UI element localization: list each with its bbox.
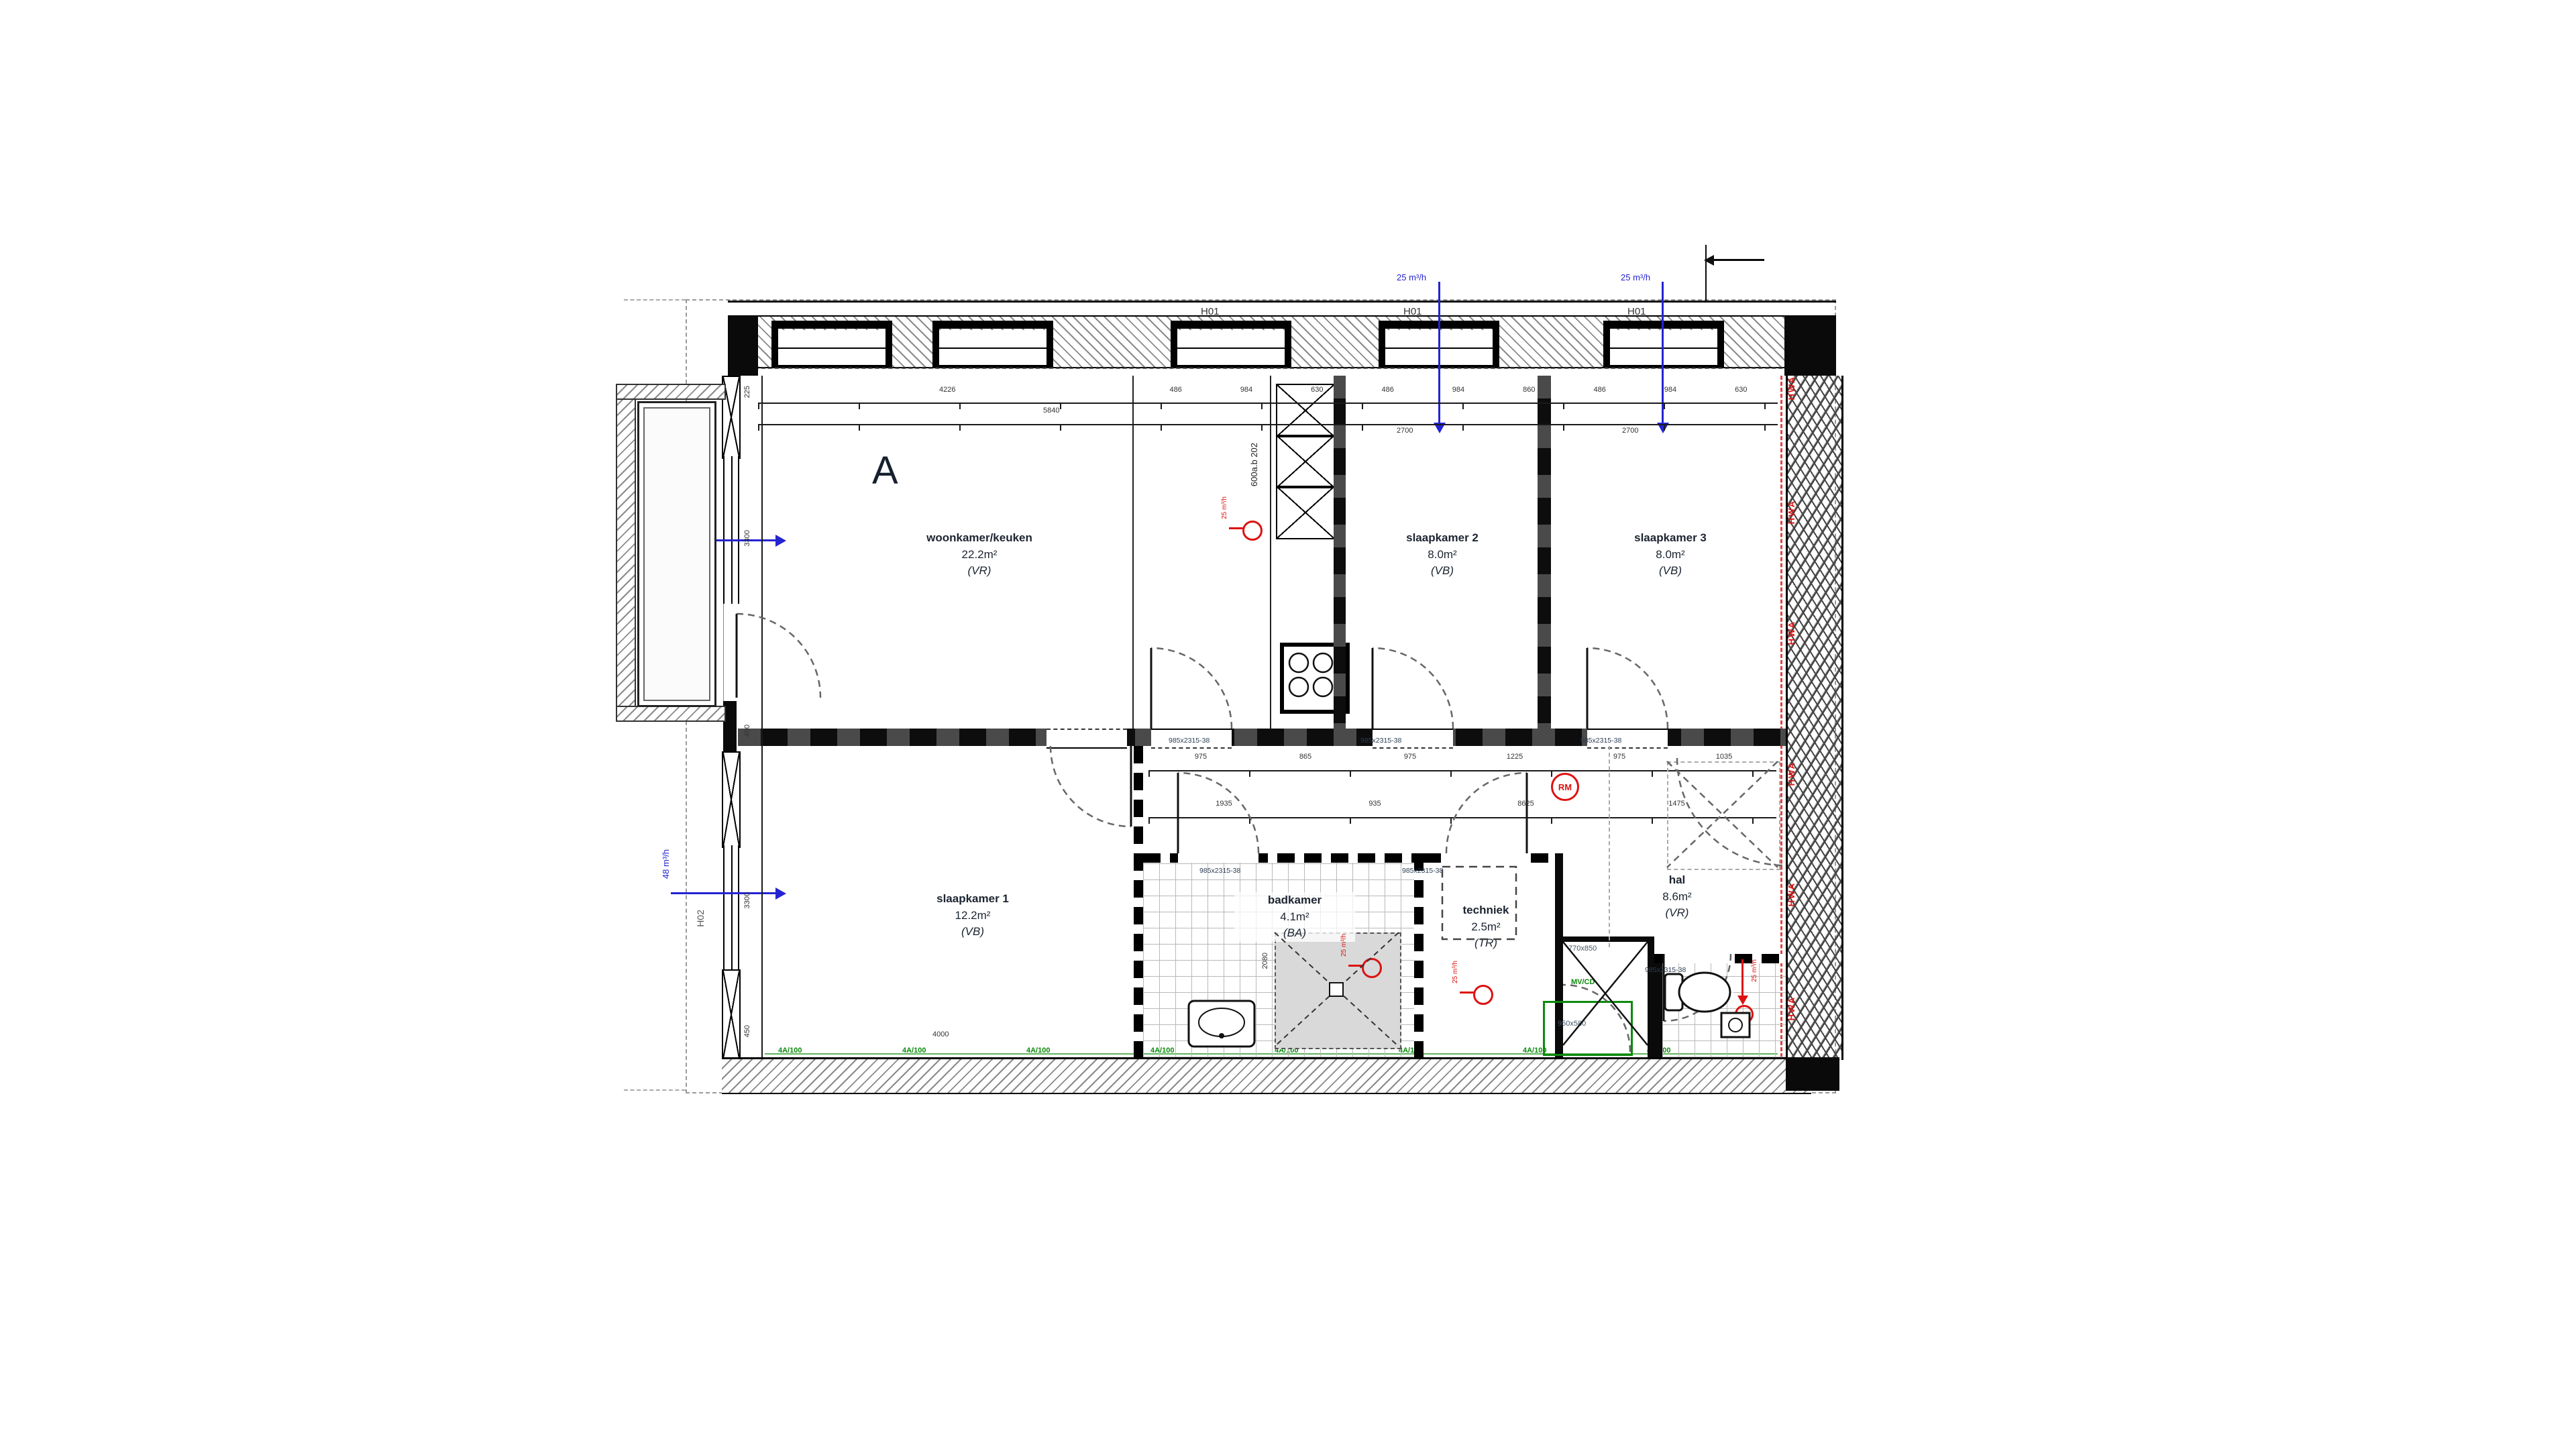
- door-swing-arcs: [737, 614, 1784, 1052]
- hob-burners-icon: [1289, 653, 1332, 696]
- floor-plan-canvas: H01 H01 H01 25 m³/h 25 m³/h 83 m³/h H10 …: [0, 0, 2576, 1447]
- techniek-appliance-icon: [1442, 867, 1516, 939]
- door-swings-overlay: [0, 0, 2576, 1447]
- toilet-icon: [1665, 973, 1730, 1012]
- handbasin-icon: [1721, 1013, 1750, 1037]
- shower-drain-icon: [1330, 983, 1343, 996]
- washbasin-icon: [1189, 1001, 1254, 1047]
- shaft-cross-icon: [1563, 942, 1648, 1045]
- door-leaves: [737, 614, 1664, 1021]
